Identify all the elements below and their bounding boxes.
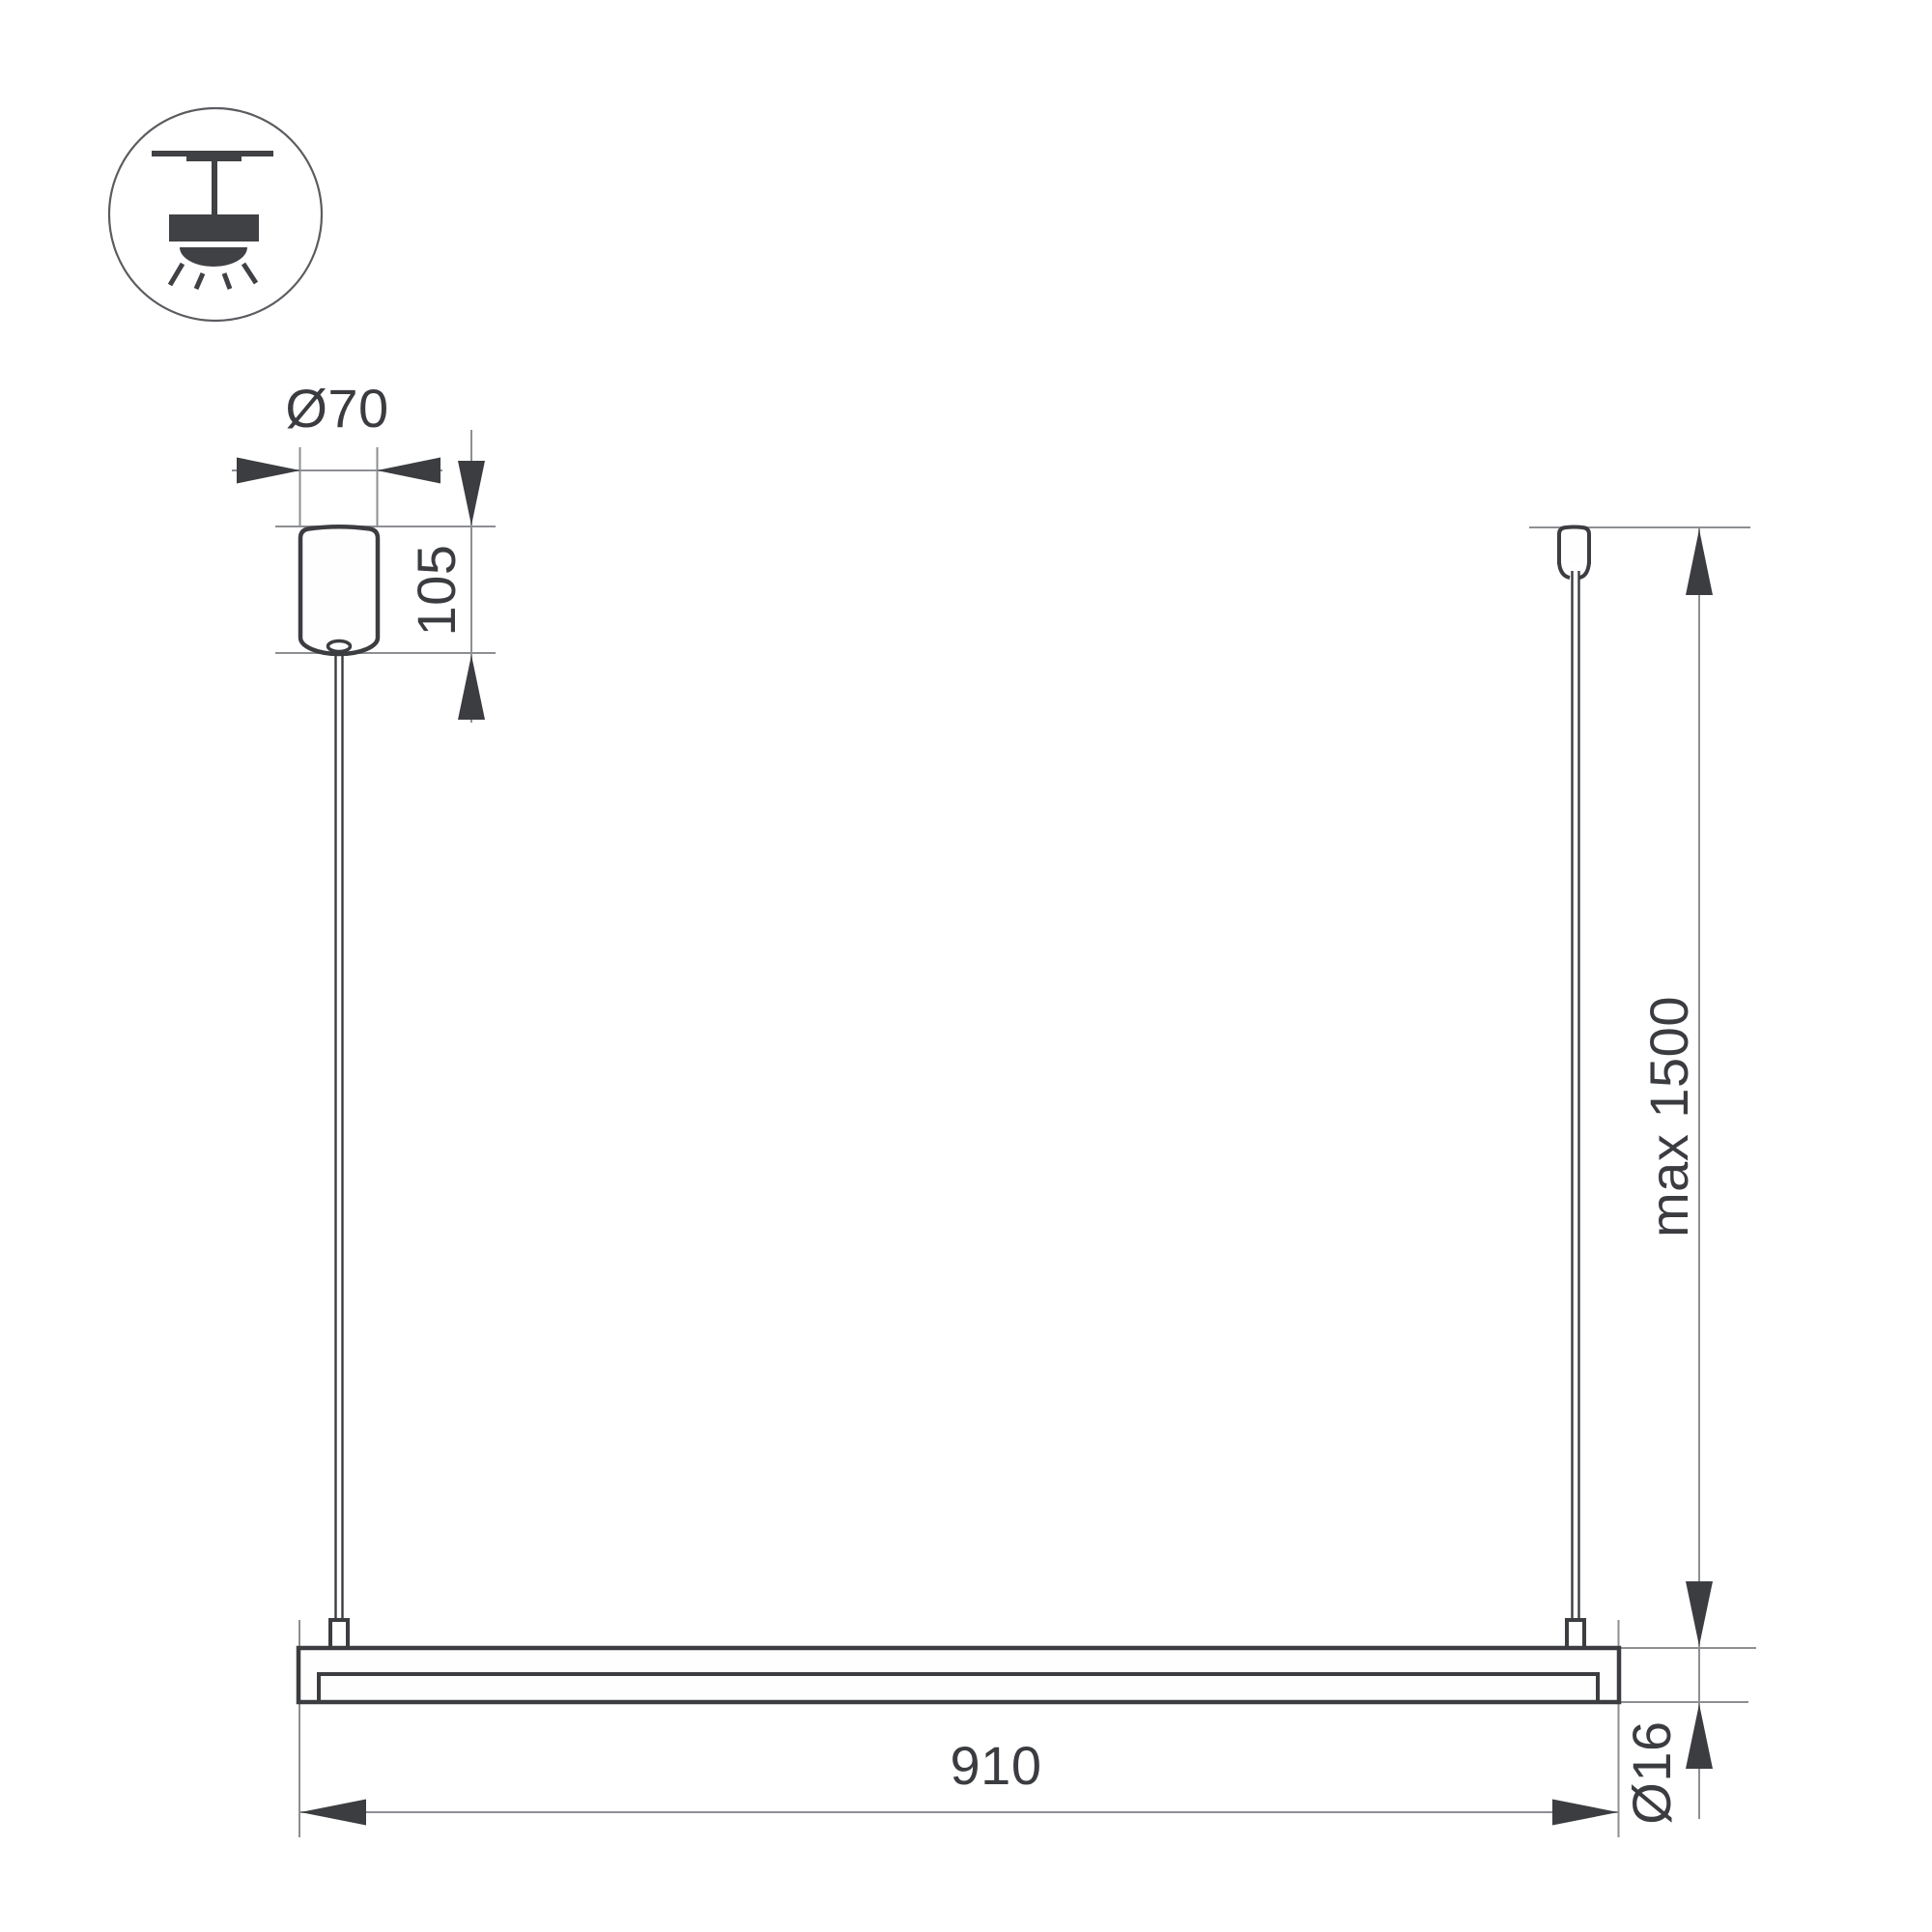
cable-gripper-left bbox=[330, 1620, 348, 1648]
canopy-cable-gland bbox=[328, 641, 351, 652]
pendant-ceiling-mount-icon bbox=[109, 108, 322, 321]
icon-lamp-dome bbox=[180, 247, 247, 267]
dim-label-canopy-diameter: Ø70 bbox=[285, 378, 388, 439]
icon-stem bbox=[212, 159, 217, 215]
dimension-lines bbox=[232, 430, 1756, 1837]
dim-label-fixture-length: 910 bbox=[951, 1735, 1042, 1796]
technical-drawing: Ø70 105 max 1500 910 Ø16 bbox=[0, 0, 1932, 1932]
fixture-geometry bbox=[298, 526, 1619, 1702]
dimension-arrows bbox=[237, 458, 1713, 1826]
arrow-suspension-top bbox=[1686, 529, 1713, 595]
arrow-fixture-length-left bbox=[300, 1800, 366, 1826]
icon-lamp-body bbox=[169, 214, 259, 241]
arrow-fixture-length-right bbox=[1552, 1800, 1618, 1826]
dim-label-tube-diameter: Ø16 bbox=[1621, 1720, 1682, 1824]
cable-gripper-right bbox=[1567, 1620, 1584, 1648]
dim-label-suspension-length: max 1500 bbox=[1638, 996, 1699, 1237]
icon-light-ray-4 bbox=[243, 264, 256, 283]
arrow-canopy-height-bottom bbox=[458, 655, 485, 720]
ceiling-canopy bbox=[300, 526, 378, 654]
arrow-tube-diameter-bottom bbox=[1686, 1704, 1713, 1769]
icon-light-ray-2 bbox=[196, 273, 203, 289]
arrow-canopy-diameter-right bbox=[377, 458, 440, 484]
dimension-drawing-canvas: Ø70 105 max 1500 910 Ø16 bbox=[0, 0, 1932, 1932]
arrow-suspension-bottom bbox=[1686, 1581, 1713, 1646]
dim-label-canopy-height: 105 bbox=[406, 545, 467, 637]
ceiling-cup-right-bottom-right-arc bbox=[1579, 562, 1589, 578]
icon-light-ray-1 bbox=[170, 264, 183, 285]
ceiling-cup-right bbox=[1559, 527, 1589, 565]
icon-light-ray-3 bbox=[224, 273, 230, 289]
arrow-canopy-height-top bbox=[458, 461, 485, 526]
ceiling-cup-right-bottom-left-arc bbox=[1559, 562, 1570, 578]
arrow-canopy-diameter-left bbox=[237, 458, 300, 484]
